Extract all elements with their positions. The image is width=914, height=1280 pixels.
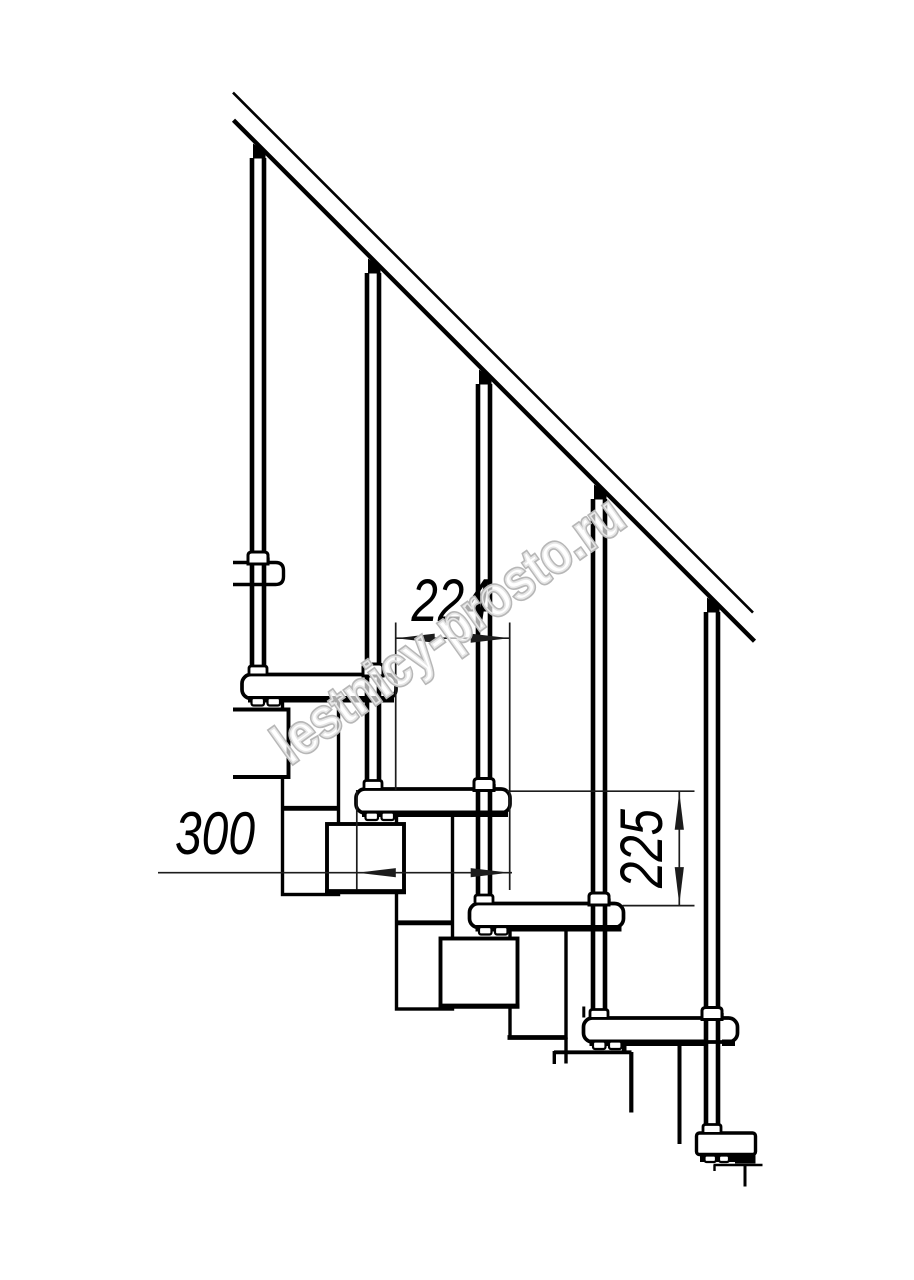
svg-text:300: 300 bbox=[175, 800, 255, 867]
svg-text:225: 225 bbox=[608, 809, 675, 889]
